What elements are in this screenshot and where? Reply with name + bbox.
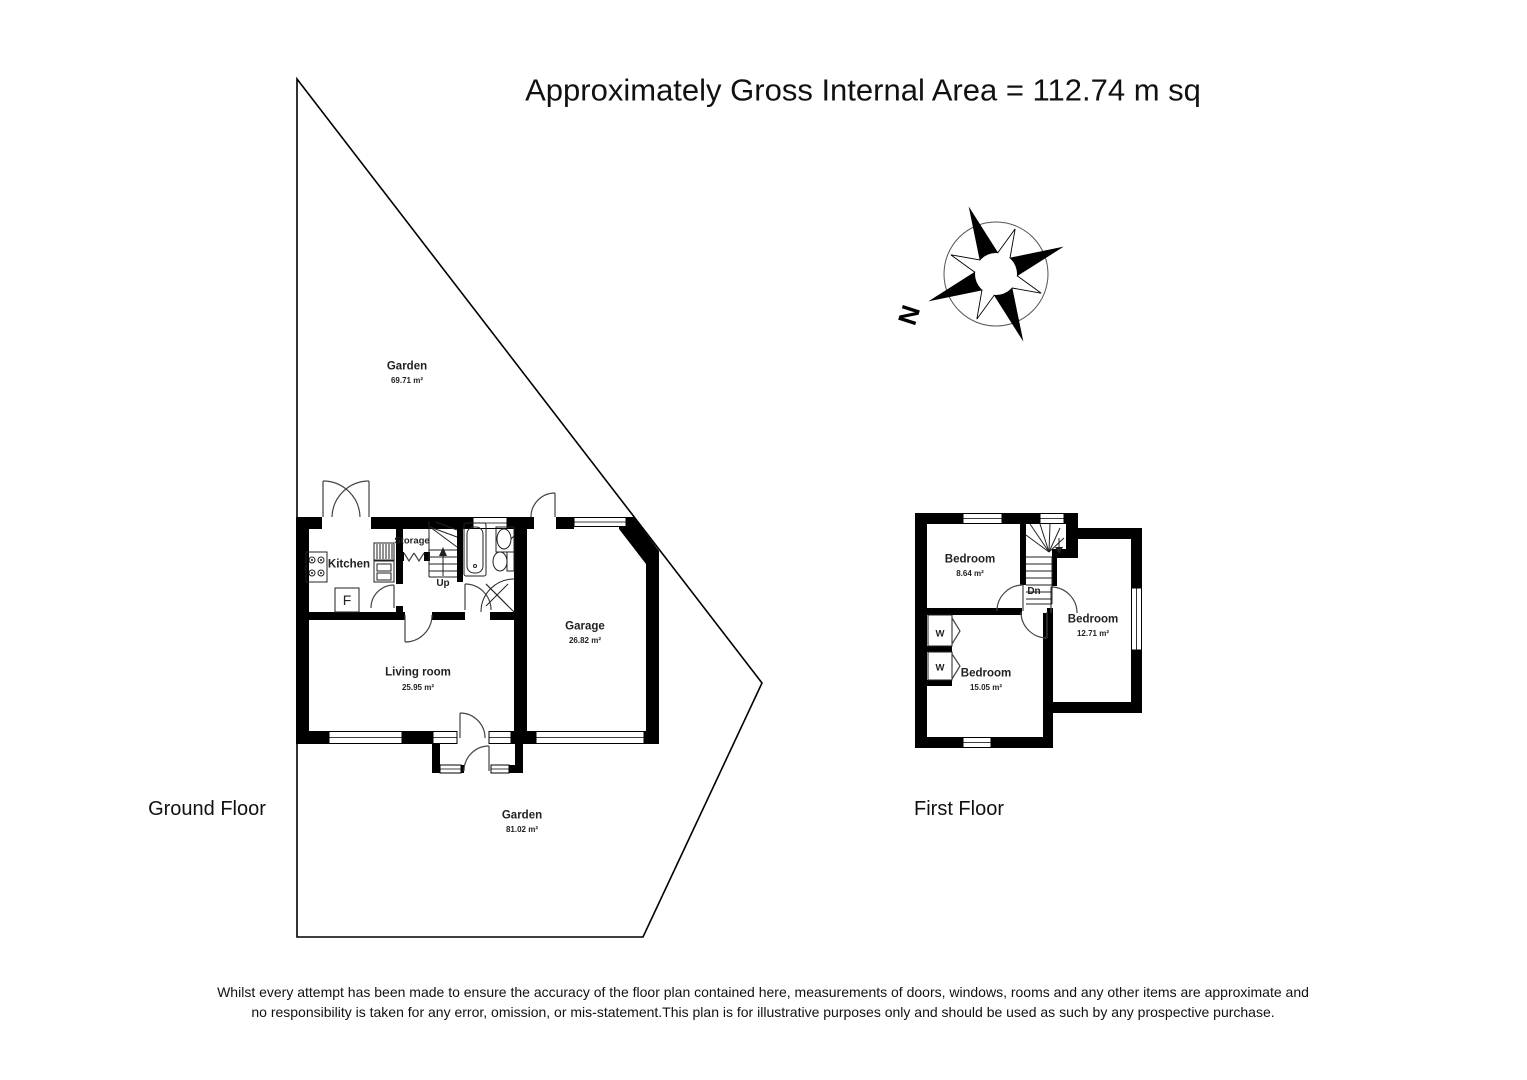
oven-icon (374, 561, 394, 582)
storage-bifold-door (404, 553, 424, 561)
living-room-area: 25.95 m² (402, 684, 434, 692)
stairs-down-label: Dn (1027, 587, 1040, 597)
bedroom-large-label: Bedroom (961, 668, 1011, 680)
page-title: Approximately Gross Internal Area = 112.… (525, 75, 1201, 106)
window (963, 514, 1002, 524)
bedroom-small-door (997, 585, 1023, 611)
window (329, 732, 402, 744)
garden-bottom-area: 81.02 m² (506, 826, 538, 834)
fridge-label: F (343, 593, 352, 607)
counter-icon (374, 543, 394, 560)
bathtub-icon (464, 523, 486, 576)
porch-inner-door (460, 713, 485, 738)
storage-label: Storage (394, 536, 429, 546)
garage-label: Garage (565, 621, 605, 633)
window (440, 765, 461, 773)
kitchen-label: Kitchen (328, 559, 370, 571)
toilet-icon (493, 552, 514, 571)
bedroom-small-label: Bedroom (945, 554, 995, 566)
garden-top-area: 69.71 m² (391, 377, 423, 385)
bedroom-right-label: Bedroom (1068, 614, 1118, 626)
window (963, 738, 991, 748)
garage-area: 26.82 m² (569, 637, 601, 645)
window (1132, 588, 1142, 650)
stairs-up-label: Up (436, 579, 449, 589)
bedroom-small-area: 8.64 m² (956, 570, 984, 578)
first-floor-title: First Floor (914, 799, 1004, 819)
window (433, 732, 457, 744)
hob-icon (306, 552, 327, 582)
ground-floor-title: Ground Floor (148, 799, 266, 819)
garden-bottom-label: Garden (502, 810, 542, 822)
side-door (531, 493, 555, 517)
bedroom-large-area: 15.05 m² (970, 684, 1002, 692)
window (491, 765, 509, 773)
sink-icon (496, 527, 514, 552)
compass-rose (901, 179, 1091, 369)
bathroom-door (465, 584, 491, 610)
living-room-door (405, 615, 432, 642)
disclaimer-line-1: Whilst every attempt has been made to en… (217, 985, 1309, 999)
kitchen-door (371, 585, 394, 608)
ground-floor-stairs-icon (429, 521, 457, 577)
french-door (323, 481, 369, 517)
floor-plan-canvas (0, 0, 1527, 1080)
disclaimer-line-2: no responsibility is taken for any error… (251, 1005, 1274, 1019)
living-room-label: Living room (385, 667, 451, 679)
window (1040, 514, 1064, 524)
wardrobe-label: W (936, 663, 945, 673)
bedroom-right-area: 12.71 m² (1077, 630, 1109, 638)
floorplan-page: Approximately Gross Internal Area = 112.… (0, 0, 1527, 1080)
window (574, 518, 626, 527)
entrance-door (464, 746, 489, 771)
window (489, 732, 511, 744)
wardrobe-label: W (936, 629, 945, 639)
bedroom-right-door (1051, 587, 1077, 613)
window (536, 732, 644, 744)
garden-top-label: Garden (387, 361, 427, 373)
